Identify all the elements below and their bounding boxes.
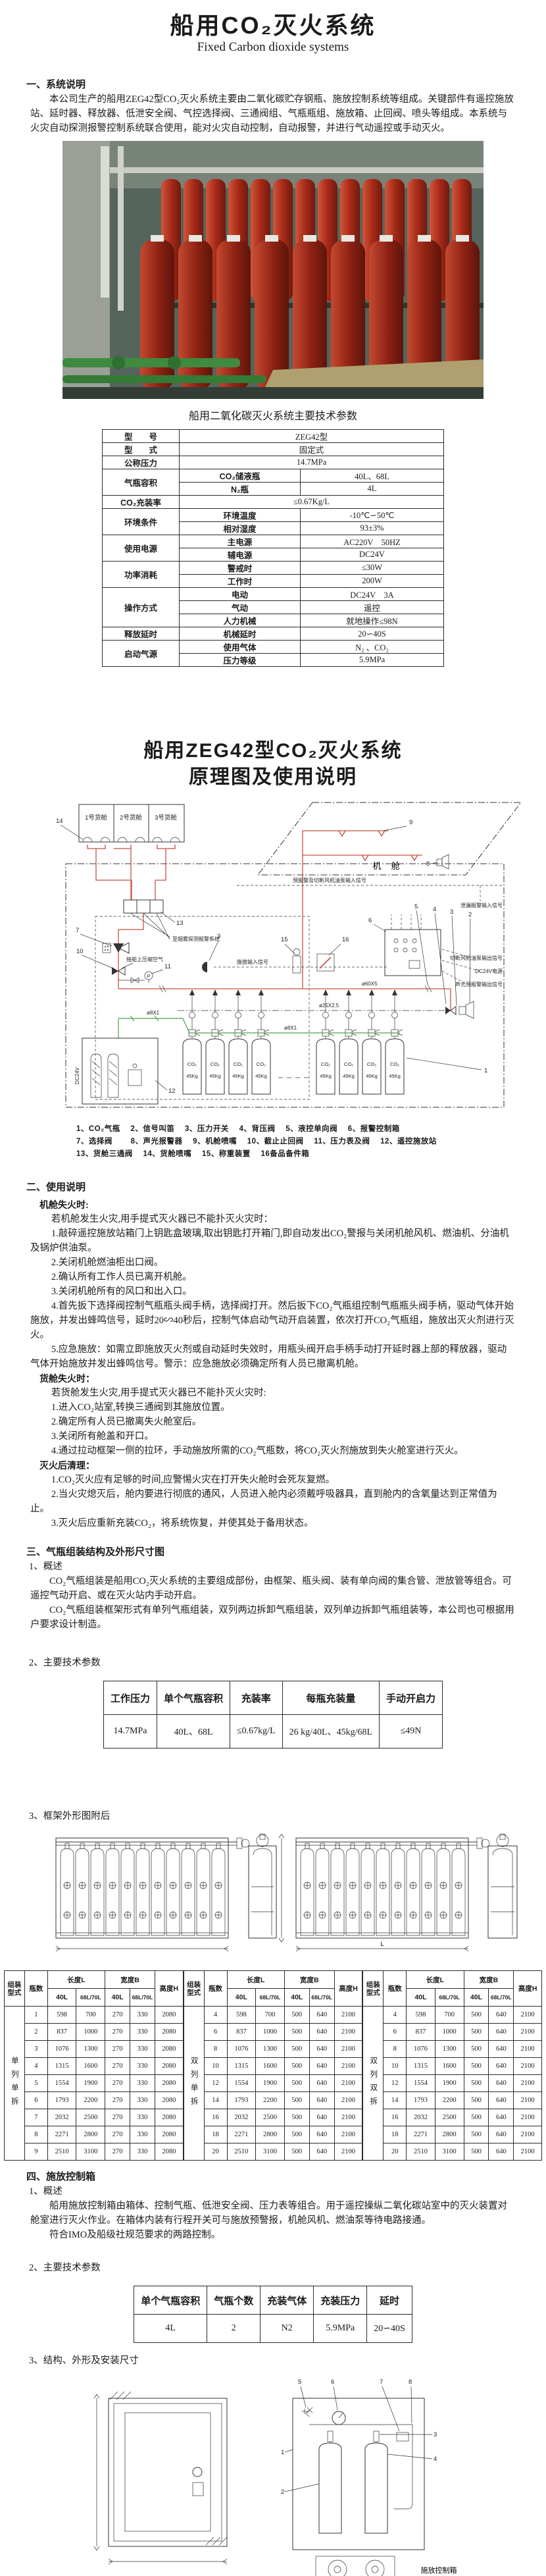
table-cell: 1600 [435,2058,464,2075]
table-cell: 2100 [514,2126,542,2143]
table-cell: 4 [384,2007,407,2024]
dim-type-label: 双列单拆 [189,2057,199,2111]
table-cell: 500 [284,2126,309,2143]
table-cell: 2500 [76,2109,105,2126]
callout-3: 3 [217,933,220,940]
pressure-switch-icon [202,962,207,972]
table-cell: 1300 [256,2041,285,2058]
table-cell: 2510 [227,2143,256,2161]
dim-68l: 68L/70L [489,1989,514,2007]
table-cell: 1554 [227,2075,256,2092]
rack-params-table: 工作压力单个气瓶容积充装率每瓶充装量手动开启力 14.7MPa40L、68L≤0… [103,1681,443,1748]
prealarm-signal-label: 预报警及切断风机油泵输入信号 [293,877,366,883]
table-cell: 1315 [227,2058,256,2075]
table-cell: 延时 [367,2286,412,2315]
table-cell: 2032 [227,2109,256,2126]
dim-68l: 68L/70L [76,1989,105,2007]
table-cell: 837 [47,2024,76,2041]
table-row: 14.7MPa40L、68L≤0.67kg/L26 kg/40L、45kg/68… [103,1715,442,1748]
table-cell: 1793 [407,2092,435,2109]
spec-value: N₂ 、CO₂ [301,641,444,654]
dim-68l: 68L/70L [130,1989,155,2007]
hold-nozzles [83,837,180,842]
pipe-8x1-label2: ø8X1 [284,1025,297,1031]
table-cell: 1600 [76,2058,105,2075]
section4-p1: 船用施放控制箱由箱体、控制气瓶、低泄安全阀、压力表等组合。用于遥控操纵二氧化碳站… [30,2199,516,2228]
table-cell: 2080 [155,2092,183,2109]
dim-40l: 40L [407,1989,435,2007]
usage-para: 2.关闭机舱燃油柜出口阀。 [30,1255,516,1270]
table-cell: 2032 [407,2109,435,2126]
table-row: 10131516005006402100 [204,2058,362,2075]
table-row: 瓶数 长度L 宽度B 高度H [204,1971,362,1989]
callout-9: 9 [409,819,412,826]
table-cell: 330 [130,2007,155,2024]
table-cell: 640 [489,2041,514,2058]
table-cell: 6 [384,2024,407,2041]
table-row: 5155419002703302080 [24,2075,183,2092]
spec-sublabel: 机械延时 [180,627,301,641]
dim-type-header: 组装型式 [363,1971,383,2007]
hold1-label: 1号货舱 [85,814,107,822]
schematic-title-line2: 原理图及使用说明 [0,764,546,791]
schematic-legend: 1、CO₂气瓶 2、信号叫笛 3、压力开关 4、背压阀 5、液控单向阀 6、报警… [0,1123,546,1161]
table-cell: 270 [105,2109,130,2126]
table-row: 12155419005006402100 [204,2075,362,2092]
callout-12: 12 [168,1088,176,1095]
spec-sublabel: CO₂储液瓶 [180,469,301,483]
section1-paragraph: 本公司生产的船用ZEG42型CO₂灭火系统主要由二氧化碳贮存钢瓶、施放控制系统等… [30,92,516,136]
table-cell: 2 [24,2024,47,2041]
usage-para: 2.确认所有工作人员已离开机舱。 [30,1270,516,1284]
section3-text: CO₂气瓶组装是船用CO₂灭火系统的主要组成部份，由框架、瓶头阀、装有单向阀的集… [0,1574,546,1632]
section2-heading: 二、使用说明 [0,1180,546,1195]
table-cell: 1900 [76,2075,105,2092]
usage-para: 若机舱发生火灾,用手提式灭火器已不能扑灭火灾时： [30,1212,516,1226]
table-row: 14179322005006402100 [384,2092,542,2109]
usage-para: 货舱失火时： [30,1371,516,1386]
table-cell: 2080 [155,2024,183,2041]
table-cell: 2100 [514,2092,542,2109]
table-cell: 640 [489,2109,514,2126]
section3-sub2: 2、主要技术参数 [0,1656,546,1670]
spec-value: ≤0.67Kg/L [180,496,444,509]
table-cell: 1300 [435,2041,464,2058]
dim-40l: 40L [105,1989,130,2007]
spec-value: 200W [301,575,444,588]
spec-value: AC220V 50HZ [301,535,444,548]
table-cell: 330 [130,2024,155,2041]
table-row: 4131516002703302080 [24,2058,183,2075]
table-row: 8107613005006402100 [204,2041,362,2058]
table-cell: 2080 [155,2007,183,2024]
dim-40l: 40L [284,1989,309,2007]
table-row: 18227128005006402100 [204,2126,362,2143]
table-cell: 330 [130,2058,155,2075]
table-cell: 2200 [76,2092,105,2109]
callout-3: 3 [434,2431,437,2438]
cyl-label: CO₂ [234,1061,243,1067]
table-cell: 500 [464,2058,489,2075]
cyl-label: CO₂ [187,1061,197,1067]
rack-front-view-2: L [296,1838,489,1951]
spec-value: 就地操作≤98N [301,614,444,627]
spec-label: 启动气源 [103,641,180,667]
table-cell: 2100 [514,2041,542,2058]
cyl-label: CO₂ [321,1061,330,1067]
hold3-label: 3号货舱 [155,814,177,822]
table-row: 工作压力单个气瓶容积充装率每瓶充装量手动开启力 [103,1681,442,1715]
table-cell: 8 [24,2126,47,2143]
table-cell: 14.7MPa [103,1715,157,1748]
spec-label: 使用电源 [103,535,180,562]
usage-para: 2.当火灾熄灭后，舱内要进行彻底的通风，人员进入舱内必须戴呼吸器具，直到舱内的含… [30,1487,516,1516]
system-schematic: 1号货舱 2号货舱 3号货舱 14 13 至烟雾探测报警系统 7 [20,801,526,1111]
table-cell: 700 [256,2007,285,2024]
table-cell: 700 [76,2007,105,2024]
table-cell: 1600 [256,2058,285,2075]
callout-6: 6 [331,2379,334,2386]
table-cell: 5.9MPa [314,2315,367,2343]
table-cell: 6 [204,2024,227,2041]
table-cell: 2100 [514,2007,542,2024]
cyl-label: 45Kg [232,1073,244,1079]
table-row: 20251031005006402100 [384,2143,542,2161]
alarm-control-box: 6 切断风机油泵输出信号 DC24V电源 声光预报警输出信号 [368,914,503,987]
table-cell: 18 [204,2126,227,2143]
section1-heading: 一、系统说明 [0,78,546,92]
control-box-drawings-wrap: 5 6 7 8 1 2 3 4 施放控制箱 [36,2372,546,2576]
table-cell: 640 [489,2143,514,2161]
spec-value: -10℃∽50℃ [301,509,444,522]
callout-11: 11 [164,963,171,970]
rack-side-view-2 [488,1834,517,1938]
table-cell: 640 [309,2058,334,2075]
pilot-gas-line: ø8X1 ø8X1 [118,1010,400,1038]
table-cell: 1793 [47,2092,76,2109]
section3-sub3: 3、框架外形图附后 [0,1809,546,1824]
dim-width-header: 宽度B [284,1971,334,1989]
section3-heading: 三、气瓶组装结构及外形尺寸图 [0,1545,546,1560]
rack-front-view-1 [56,1838,249,1951]
table-cell: 2032 [47,2109,76,2126]
table-row: 683710005006402100 [384,2024,542,2041]
cyl-label: CO₂ [344,1061,353,1067]
callout-14: 14 [56,818,63,825]
table-row: 45987005006402100 [384,2007,542,2024]
table-cell: 12 [204,2075,227,2092]
table-cell: 40L、68L [157,1715,230,1748]
dim-type-col: 组装型式 单列单拆 [4,1970,24,2161]
table-cell: 598 [227,2007,256,2024]
photo-caption: 船用二氧化碳灭火系统主要技术参数 [0,407,546,423]
table-cell: 3100 [435,2143,464,2161]
table-cell: 270 [105,2058,130,2075]
hold2-label: 2号货舱 [120,814,142,822]
table-cell: 1793 [227,2092,256,2109]
dim-40l: 40L [47,1989,76,2007]
spec-sublabel: N₂瓶 [180,483,301,496]
table-cell: 14 [204,2092,227,2109]
dim-count-header: 瓶数 [204,1971,227,2007]
control-box-internal-view: 5 6 7 8 1 2 3 4 施放控制箱 [281,2379,457,2576]
table-cell: 1076 [407,2041,435,2058]
table-row: 45987005006402100 [204,2007,362,2024]
callout-7: 7 [76,927,79,934]
table-cell: 3100 [76,2143,105,2161]
table-cell: 4 [24,2058,47,2075]
table-row: 16203225005006402100 [204,2109,362,2126]
cyl-label: 45Kg [320,1073,332,1079]
dc24v-label: DC24V [74,1067,80,1084]
table-cell: 1900 [256,2075,285,2092]
rack-drawings-wrap: L [20,1826,546,1958]
table-row: 操作方式电动DC24V 3A [103,588,444,601]
table-row: 6179322002703302080 [24,2092,183,2109]
table-cell: 工作压力 [103,1681,157,1715]
dim-width-header: 宽度B [464,1971,514,1989]
remote-release-station: DC24V 12 [74,1038,176,1104]
usage-para: 4.通过拉动框架一侧的拉环，手动施放所需的CO₂气瓶数，将CO₂灭火剂施放到失火… [30,1444,516,1458]
usage-para: 1.敲碎遥控施放站箱门上钥匙盒玻璃,取出钥匙打开箱门,即自动发出CO₂警报与关闭… [30,1226,516,1255]
callout-8: 8 [409,2379,412,2386]
spec-value: DC24V [301,548,444,562]
table-cell: 16 [204,2109,227,2126]
usage-para: 灭火后清理： [30,1458,516,1473]
spec-sublabel: 压力等级 [180,654,301,667]
table-cell: 2100 [514,2058,542,2075]
table-cell: 330 [130,2126,155,2143]
spec-sublabel: 警戒时 [180,562,301,575]
table-cell: 2200 [435,2092,464,2109]
table-cell: 7 [24,2109,47,2126]
callout-2: 2 [468,911,472,918]
table-row: 7203225002703302080 [24,2109,183,2126]
table-cell: N2 [261,2315,314,2343]
spec-label: 型 式 [103,443,180,456]
table-cell: 2800 [76,2126,105,2143]
table-cell: 2080 [155,2058,183,2075]
av-alarm-label: 声光预报警输出信号 [455,981,503,987]
spec-label: 型 号 [103,430,180,443]
spec-value: 40L、68L [301,469,444,483]
section4-heading: 四、施放控制箱 [0,2170,546,2184]
table-row: 8107613005006402100 [384,2041,542,2058]
table-cell: 640 [309,2041,334,2058]
table-cell: 单个气瓶容积 [134,2286,207,2315]
table-cell: 2080 [155,2126,183,2143]
table-cell: 2500 [256,2109,285,2126]
weighing-device: 15 [281,936,301,973]
table-cell: 598 [47,2007,76,2024]
callout-5: 5 [414,903,418,910]
cylinder-room-photo [62,141,484,399]
table-cell: 2 [207,2315,261,2343]
table-cell: 气瓶个数 [207,2286,261,2315]
schematic-title-line1: 船用ZEG42型CO₂灭火系统 [0,738,546,764]
table-cell: 4L [134,2315,207,2343]
photo-white-pipe2 [118,146,124,311]
dim-type-col: 组装型式 双列单拆 [184,1970,204,2161]
table-cell: 2100 [514,2143,542,2161]
pipe-60x5-label: ø60X5 [362,981,378,987]
table-cell: ≤49N [380,1715,443,1748]
table-cell: 330 [130,2109,155,2126]
table-row: 9251031002703302080 [24,2143,183,2161]
usage-para: 1.CO₂灭火应有足够的时间,应警惕火灾在打开失火舱时会死灰复燃。 [30,1473,516,1487]
table-cell: 640 [489,2024,514,2041]
section4-sub2: 2、主要技术参数 [0,2261,546,2275]
table-cell: 2271 [227,2126,256,2143]
callout-2: 2 [281,2488,284,2496]
cyl-label: 45Kg [389,1073,401,1079]
table-cell: 1076 [47,2041,76,2058]
cyl-label: 45Kg [255,1073,267,1079]
cargo-discharge-lines: 13 至烟雾探测报警系统 [87,845,220,989]
spec-value: ZEG42型 [180,430,444,443]
table-cell: 2100 [334,2041,362,2058]
callout-8: 8 [426,860,430,868]
pipe-8x1-label: ø8X1 [147,1010,160,1016]
table-cell: 充装压力 [314,2286,367,2315]
callout-6: 6 [368,917,372,924]
dimension-tables: 组装型式 单列单拆 瓶数 长度L 宽度B 高度H 40L 68L/70L 40L [0,1970,546,2161]
table-cell: 1554 [47,2075,76,2092]
table-cell: 2100 [514,2024,542,2041]
table-cell: 1554 [407,2075,435,2092]
spec-value: 5.9MPa [301,654,444,667]
spec-label: 公称压力 [103,456,180,469]
table-cell: 2100 [334,2092,362,2109]
table-cell: 2080 [155,2075,183,2092]
table-cell: 640 [489,2126,514,2143]
callout-5: 5 [298,2379,301,2386]
table-cell: 640 [309,2075,334,2092]
table-cell: 270 [105,2126,130,2143]
table-row: 683710005006402100 [204,2024,362,2041]
table-cell: 500 [284,2092,309,2109]
cyl-label: 45Kg [343,1073,355,1079]
compressed-air-label: 接船上压缩空气 [126,956,163,962]
table-row: 瓶数 长度L 宽度B 高度H [24,1971,183,1989]
table-cell: 2271 [407,2126,435,2143]
table-cell: 1315 [407,2058,435,2075]
cargo-holds: 1号货舱 2号货舱 3号货舱 14 [56,804,184,842]
table-row: 气瓶容积CO₂储液瓶40L、68L [103,469,444,483]
table-row: 4L2N25.9MPa20∽40S [134,2315,412,2343]
table-row: 20251031005006402100 [204,2143,362,2161]
dim-type-label: 单列单拆 [9,2057,20,2111]
usage-text: 机舱失火时: 若机舱发生火灾,用手提式灭火器已不能扑灭火灾时： 1.敲碎遥控施放… [0,1197,546,1531]
table-cell: 500 [464,2092,489,2109]
table-cell: 8 [384,2041,407,2058]
table-cell: 640 [309,2109,334,2126]
table-cell: 5 [24,2075,47,2092]
table-row: 功率消耗警戒时≤30W [103,562,444,575]
callout-13: 13 [176,920,184,927]
cyl-label: CO₂ [257,1061,266,1067]
gauge-p-label: P [147,974,150,979]
table-cell: 3100 [256,2143,285,2161]
spec-value: DC24V 3A [301,588,444,601]
table-row: 环境条件环境温度-10℃∽50℃ [103,509,444,522]
callout-7: 7 [380,2379,383,2386]
table-cell: 837 [407,2024,435,2041]
callout-4: 4 [433,906,436,913]
table-cell: 16 [384,2109,407,2126]
callout-4: 4 [434,2456,437,2463]
table-cell: 9 [24,2143,47,2161]
table-cell: 2510 [47,2143,76,2161]
spec-sublabel: 工作时 [180,575,301,588]
dc24v-power-label: DC24V电源 [475,968,503,974]
spec-value: 20∽40S [301,627,444,641]
dim-width-header: 宽度B [105,1971,155,1989]
page-subtitle: Fixed Carbon dioxide systems [0,39,546,55]
callout-1: 1 [281,2449,284,2456]
table-cell: 1315 [47,2058,76,2075]
section4-sub1: 1、概述 [0,2184,546,2199]
control-box-caption: 施放控制箱 [421,2565,457,2575]
table-cell: 500 [464,2143,489,2161]
spec-value: 遥控 [301,601,444,614]
cyl-label: 45Kg [209,1073,221,1079]
table-row: 10131516005006402100 [384,2058,542,2075]
table-row: 8227128002703302080 [24,2126,183,2143]
section3-p2: CO₂气瓶组装框架形式有单列气瓶组装，双列两边拆卸气瓶组装，双列单边拆卸气瓶组装… [30,1603,516,1632]
spare-parts-box: 16 [317,936,349,971]
document-page: 船用CO₂灭火系统 Fixed Carbon dioxide systems 一… [0,0,546,2576]
spec-sublabel: 人力机械 [180,614,301,627]
table-row: 启动气源使用气体N₂ 、CO₂ [103,641,444,654]
table-cell: 500 [284,2024,309,2041]
section1-text: 本公司生产的船用ZEG42型CO₂灭火系统主要由二氧化碳贮存钢瓶、施放控制系统等… [0,92,546,136]
cyl-label: 45Kg [186,1073,198,1079]
dim-group-single: 组装型式 单列单拆 瓶数 长度L 宽度B 高度H 40L 68L/70L 40L [4,1970,184,2161]
dim-40l: 40L [464,1989,489,2007]
table-row: 283710002703302080 [24,2024,183,2041]
discharge-manifold: ø60X5 ø25X2.5 [118,981,451,1011]
table-cell: 2100 [334,2143,362,2161]
dim-table-1: 瓶数 长度L 宽度B 高度H 40L 68L/70L 40L 68L/70L 1… [24,1970,184,2161]
callout-3b: 3 [450,908,453,916]
table-cell: 330 [130,2143,155,2161]
table-cell: 10 [204,2058,227,2075]
dim-group-double-double: 组装型式 双列双拆 瓶数 长度L 宽度B 高度H 40L 68L/70L 40L [362,1970,542,2161]
spec-label: CO₂充装率 [103,496,180,509]
dim-height-header: 高度H [514,1971,542,2007]
dim-height-header: 高度H [334,1971,362,2007]
table-cell: 640 [489,2058,514,2075]
spec-value: 93±3% [301,522,444,535]
dim-group-double-single: 组装型式 双列单拆 瓶数 长度L 宽度B 高度H 40L 68L/70L 40L [184,1970,363,2161]
table-cell: 20 [384,2143,407,2161]
dim-type-col: 组装型式 双列双拆 [362,1970,383,2161]
table-cell: 2510 [407,2143,435,2161]
table-cell: 640 [489,2007,514,2024]
table-cell: 640 [309,2092,334,2109]
table-cell: 2100 [334,2024,362,2041]
table-cell: 12 [384,2075,407,2092]
release-signal-label: 施放输入信号 [237,959,268,965]
spec-sublabel: 相对湿度 [180,522,301,535]
table-row: 3107613002703302080 [24,2041,183,2058]
usage-para: 5.应急施放：如需立即施放灭火剂或自动延时失效时，用瓶头阀开启手柄手动打开延时器… [30,1342,516,1371]
callout-15: 15 [281,936,288,943]
photo-floor-edge [62,387,484,399]
table-cell: 20 [204,2143,227,2161]
cyl-label: CO₂ [390,1061,399,1067]
